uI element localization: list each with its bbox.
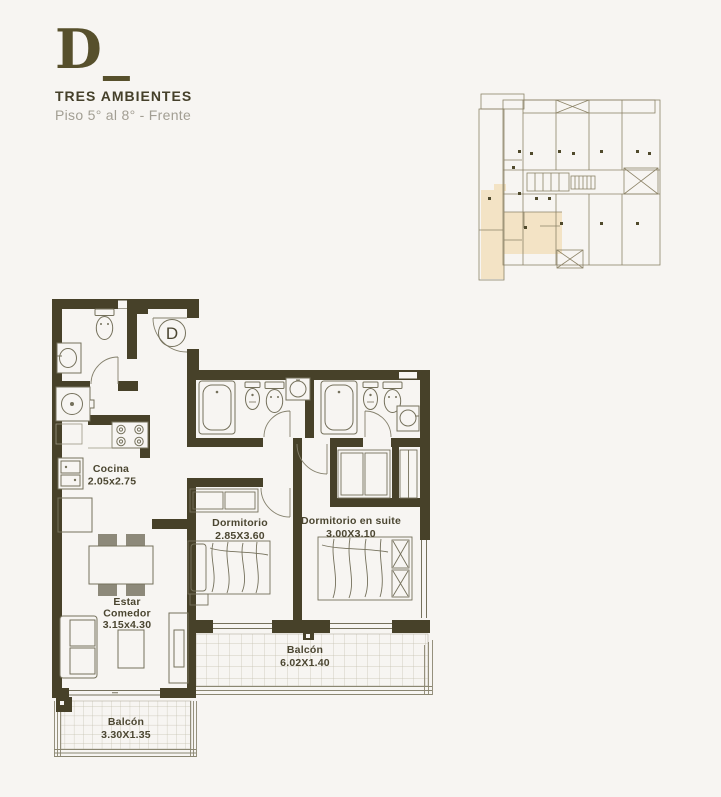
room-dims-suite: 3.00X3.10 (326, 528, 376, 540)
bidet-icon (245, 382, 260, 410)
room-dims-balcon-chico: 3.30X1.35 (101, 729, 151, 741)
room-label-estar2: Comedor (103, 608, 151, 620)
bath2-door-arc (264, 411, 290, 437)
bidet-icon (363, 382, 378, 410)
room-label-balcon-grande: Balcón (287, 644, 323, 656)
unit-badge: D (159, 320, 186, 347)
single-bed-icon (188, 541, 270, 605)
bathtub-icon (321, 381, 357, 434)
closet-icon (400, 450, 417, 498)
stove-icon (112, 422, 148, 448)
room-label-balcon-chico: Balcón (108, 716, 144, 728)
main-floor-plan: D (52, 299, 433, 757)
coffee-table-icon (118, 630, 144, 668)
kitchen-counter-line (88, 425, 112, 448)
room-label-dormitorio: Dormitorio (212, 517, 268, 529)
kitchen-sink-icon (58, 458, 83, 489)
tv-unit-icon (169, 613, 188, 683)
key-plan (479, 94, 660, 280)
room-dims-estar: 3.15x4.30 (103, 619, 152, 631)
fridge-icon (58, 498, 92, 532)
room-label-cocina: Cocina (93, 463, 129, 475)
washing-machine-icon (56, 387, 94, 421)
dormitorio-door-arc (261, 488, 290, 517)
bath1-door-arc (91, 357, 118, 384)
sink-icon (57, 343, 81, 373)
suite-bath-door-arc (365, 411, 391, 437)
toilet-icon (265, 382, 284, 413)
bathroomB-fixtures (321, 381, 419, 434)
room-label-estar1: Estar (113, 596, 140, 608)
sink-icon (286, 378, 310, 400)
double-bed-icon (318, 537, 412, 600)
bathtub-icon (199, 381, 235, 434)
toilet-icon (95, 309, 114, 340)
room-dims-balcon-grande: 6.02X1.40 (280, 657, 330, 669)
unit-badge-letter: D (166, 324, 178, 343)
sofa-icon (60, 616, 97, 678)
dormitorio-furniture (188, 489, 270, 605)
room-label-suite: Dormitorio en suite (301, 515, 401, 527)
dining-table-icon (89, 534, 153, 596)
room-dims-cocina: 2.05x2.75 (88, 476, 137, 488)
key-plan-highlighted-unit (481, 190, 562, 279)
sink-icon (397, 406, 419, 431)
bathroomA-fixtures (199, 378, 310, 434)
room-dims-dormitorio: 2.85X3.60 (215, 530, 265, 542)
closet-icon (338, 450, 390, 498)
closet-icon (190, 489, 258, 512)
floor-plan-canvas: D (0, 0, 721, 797)
